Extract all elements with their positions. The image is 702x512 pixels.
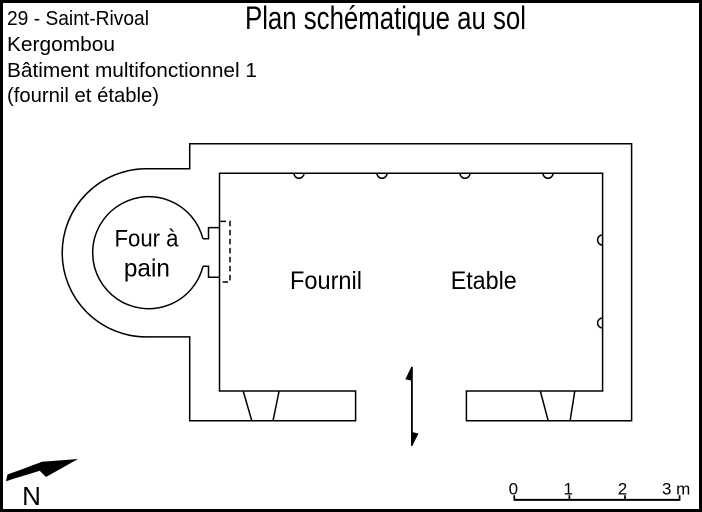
svg-text:Etable: Etable: [451, 267, 517, 295]
svg-text:Four à: Four à: [115, 226, 180, 253]
svg-text:Kergombou: Kergombou: [7, 34, 115, 56]
svg-text:29 - Saint-Rivoal: 29 - Saint-Rivoal: [7, 8, 149, 30]
svg-text:(fournil et étable): (fournil et étable): [7, 85, 159, 107]
svg-text:1: 1: [563, 480, 572, 499]
svg-text:Plan schématique au sol: Plan schématique au sol: [245, 0, 526, 36]
svg-text:N: N: [22, 481, 41, 511]
svg-text:pain: pain: [124, 255, 170, 283]
svg-text:3 m: 3 m: [662, 480, 690, 499]
svg-text:2: 2: [618, 480, 627, 499]
svg-text:0: 0: [509, 480, 518, 499]
svg-text:Bâtiment multifonctionnel 1: Bâtiment multifonctionnel 1: [7, 60, 257, 82]
svg-text:Fournil: Fournil: [290, 267, 362, 295]
